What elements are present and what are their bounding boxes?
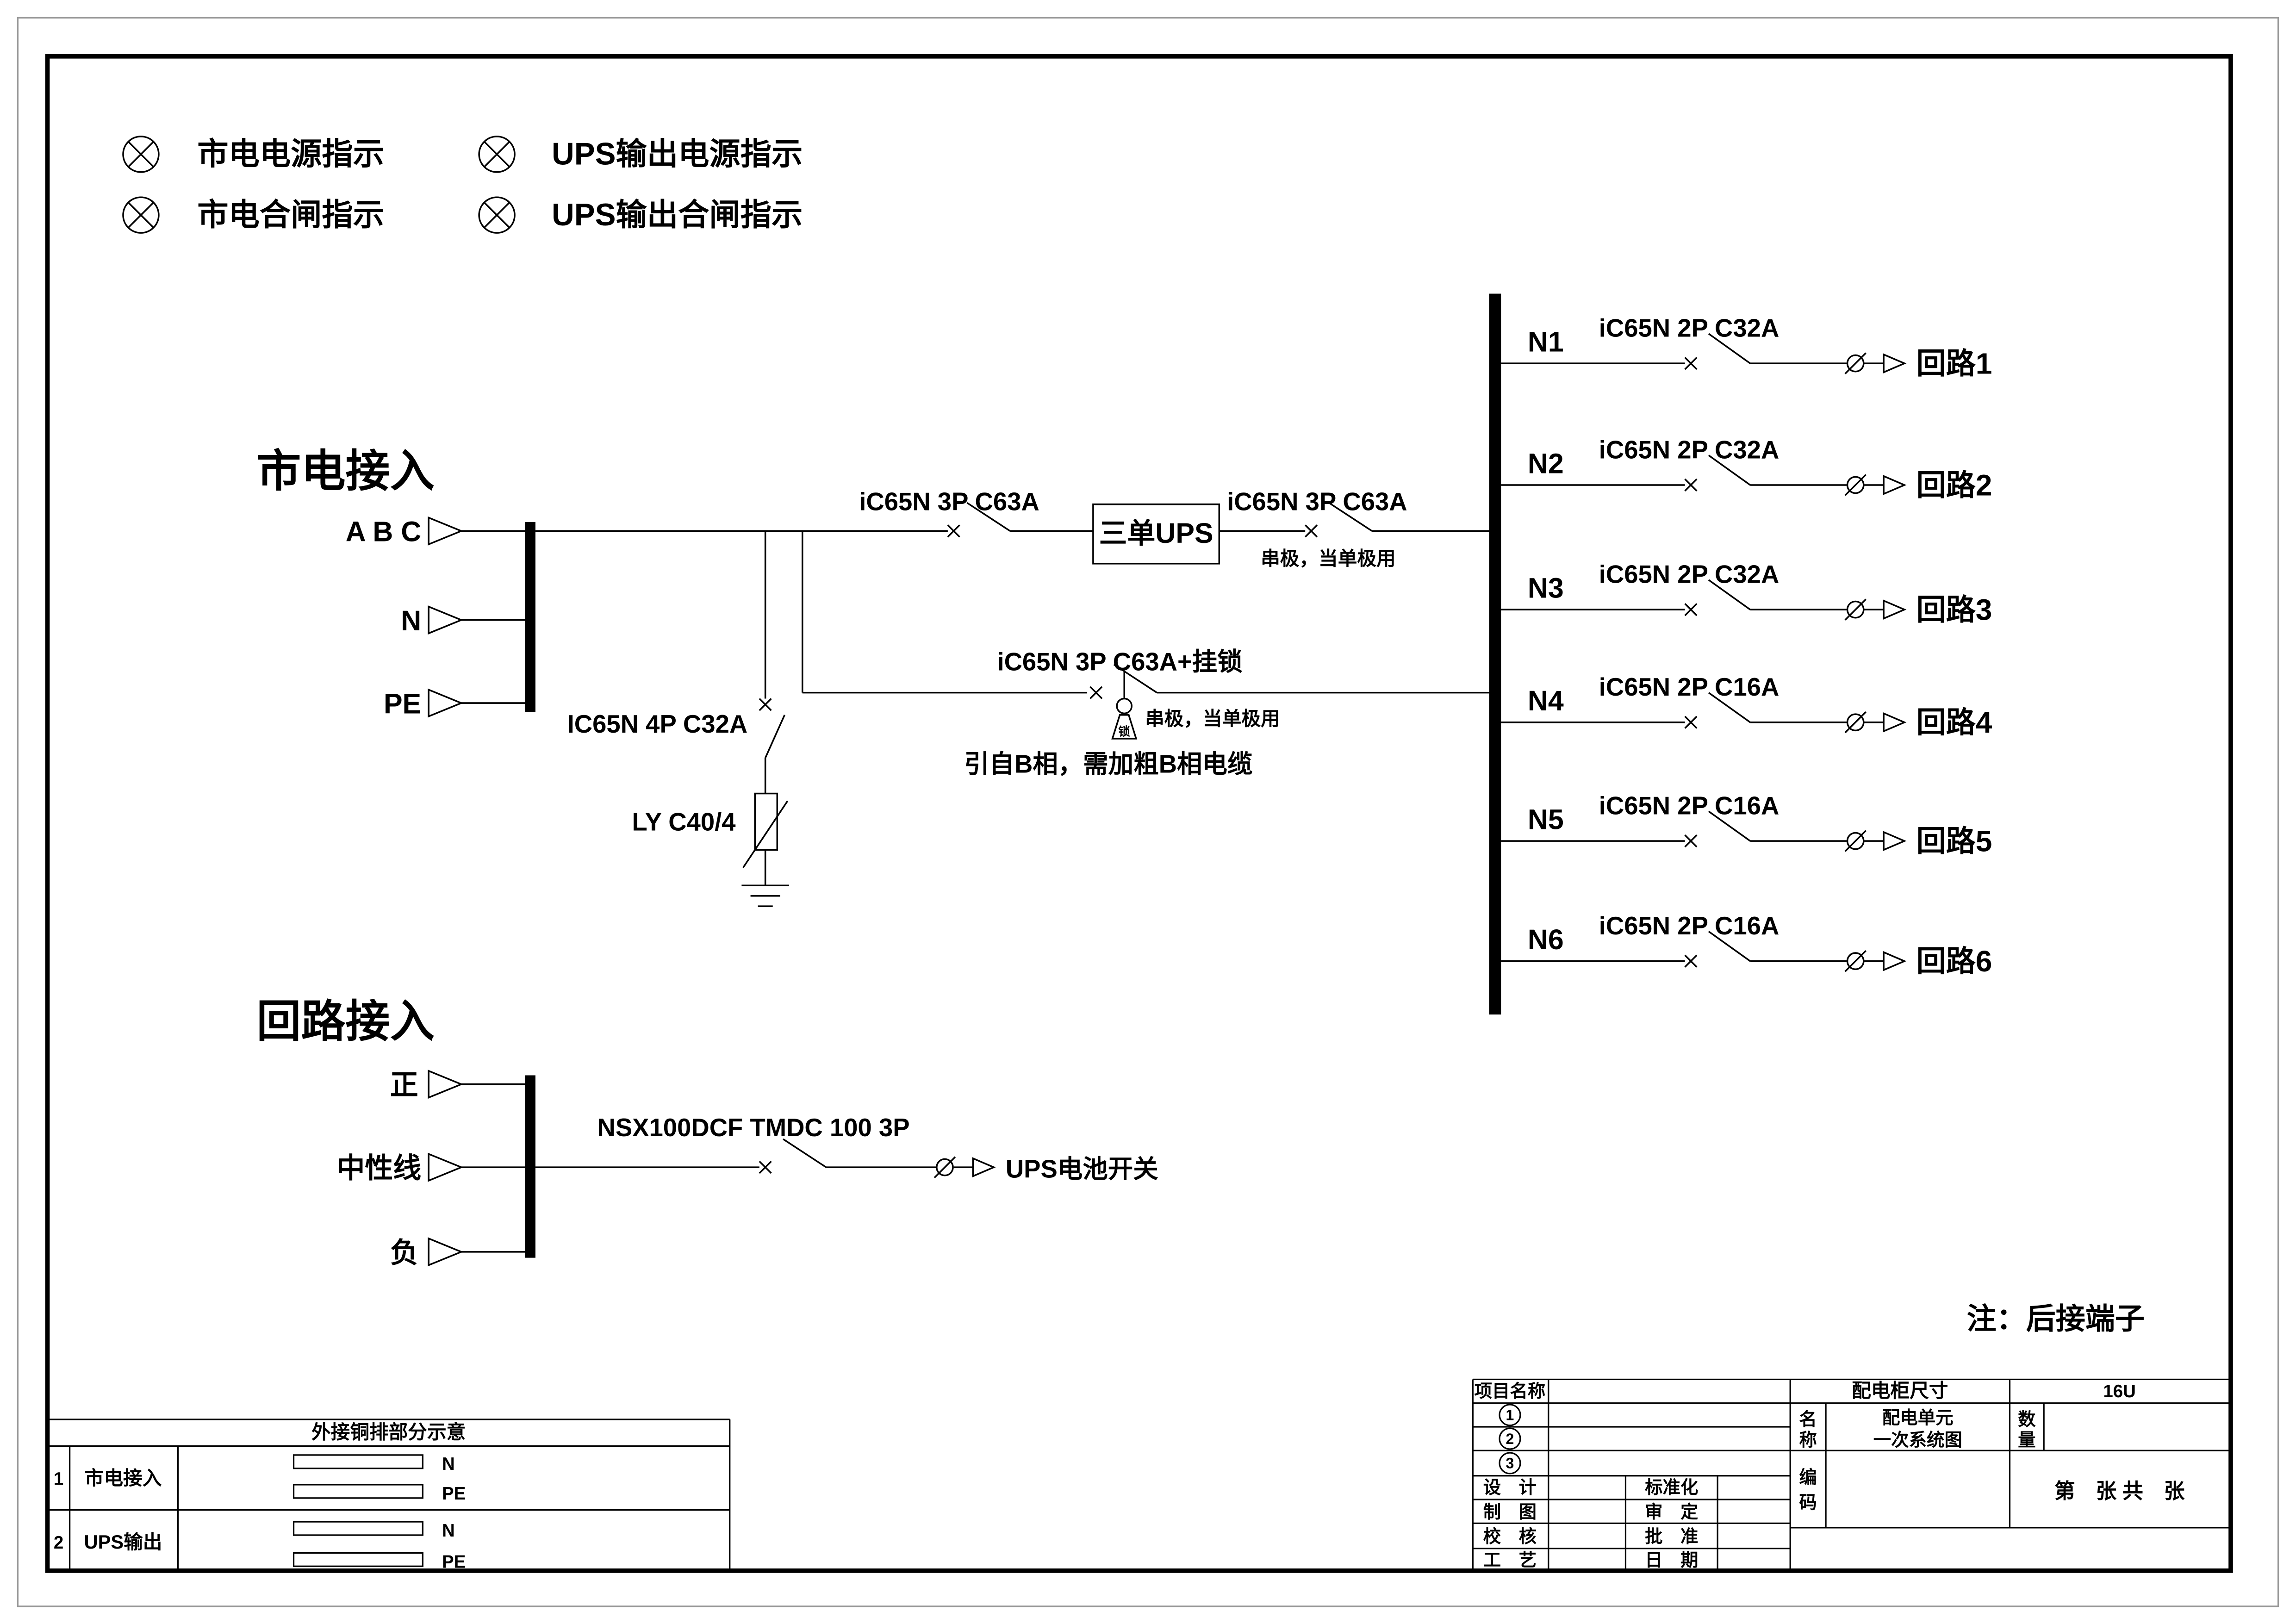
circuit-breaker-label: iC65N 2P C16A (1599, 912, 1780, 940)
svg-text:量: 量 (2018, 1431, 2035, 1450)
input-arrow-icon (429, 517, 461, 544)
circuit-id: N1 (1528, 326, 1564, 358)
output-arrow-icon (1884, 832, 1904, 850)
input-arrow-icon (429, 1238, 461, 1265)
cable-mark-icon (1845, 712, 1866, 733)
battery-output-label: UPS电池开关 (1006, 1155, 1158, 1183)
svg-text:2: 2 (1506, 1431, 1514, 1447)
circuit-breaker-label: iC65N 2P C32A (1599, 436, 1780, 464)
busbar-table-title: 外接铜排部分示意 (311, 1421, 466, 1443)
input-arrow-icon (429, 690, 461, 716)
table-row: 2 UPS输出 N PE (54, 1521, 466, 1572)
copper-bar (294, 1485, 423, 1498)
svg-text:数: 数 (2018, 1410, 2036, 1430)
padlock-char: 锁 (1118, 725, 1130, 739)
circuit-id: N4 (1528, 685, 1564, 716)
svg-text:1: 1 (1506, 1407, 1514, 1424)
project-name-label: 项目名称 (1475, 1381, 1546, 1401)
circuit-label: 回路2 (1916, 468, 1992, 502)
single-line-diagram: 市电电源指示 UPS输出电源指示 市电合闸指示 UPS输出合闸指示 市电接入 A… (0, 0, 2296, 1624)
drawing-sheet: 市电电源指示 UPS输出电源指示 市电合闸指示 UPS输出合闸指示 市电接入 A… (0, 0, 2296, 1624)
drawing-name-line2: 一次系统图 (1873, 1431, 1962, 1450)
indicator-lamp-icon (479, 137, 515, 172)
mains-bus-bar (525, 522, 535, 712)
bar-label: N (442, 1521, 455, 1541)
cable-note: 引自B相，需加粗B相电缆 (964, 750, 1252, 778)
title-block: 项目名称 配电柜尺寸 16U 1 2 3 名 称 配电单元 一次系统图 数 量 … (1473, 1379, 2231, 1570)
svg-text:称: 称 (1799, 1431, 1817, 1450)
battery-bus-bar (525, 1075, 535, 1257)
circuit-row: N2 iC65N 2P C32A 回路2 (1501, 436, 1992, 502)
output-arrow-icon (973, 1158, 994, 1176)
spd-label: LY C40/4 (632, 808, 735, 836)
breaker-label: IC65N 4P C32A (567, 710, 748, 738)
breaker-label: NSX100DCF TMDC 100 3P (597, 1114, 910, 1142)
circled-number-1: 1 (1500, 1405, 1520, 1425)
copper-bar (294, 1455, 423, 1468)
busbar-table: 外接铜排部分示意 1 市电接入 N PE 2 UPS输出 N PE (48, 1419, 730, 1572)
circuit-breaker-label: iC65N 2P C16A (1599, 791, 1780, 820)
standardization-label: 标准化 (1645, 1478, 1698, 1498)
battery-title: 回路接入 (256, 997, 435, 1046)
circuit-label: 回路3 (1916, 593, 1992, 627)
circuit-label: 回路5 (1916, 825, 1992, 858)
legend-label: 市电电源指示 (197, 137, 384, 172)
circuit-id: N5 (1528, 803, 1564, 835)
sheet-number-text: 第 张 共 张 (2054, 1479, 2185, 1503)
cable-mark-icon (1845, 353, 1866, 374)
process-label: 工 艺 (1483, 1550, 1537, 1570)
bar-label: N (442, 1454, 455, 1474)
mains-section: 市电接入 A B C N PE iC65N 3P C63A 三单UPS (256, 447, 1489, 906)
ups-box-label: 三单UPS (1099, 517, 1213, 549)
spd-branch: IC65N 4P C32A LY C40/4 (567, 531, 789, 906)
ground-icon (741, 885, 789, 906)
sheet-outer-border (18, 18, 2278, 1606)
quantity-label-vertical: 数 量 (2018, 1410, 2036, 1450)
date-label: 日 期 (1645, 1550, 1698, 1570)
table-row: 1 市电接入 N PE (54, 1454, 466, 1504)
input-arrow-icon (429, 1154, 461, 1181)
battery-input-label: 负 (390, 1237, 418, 1268)
battery-input-label: 中性线 (337, 1152, 422, 1184)
row-name: 市电接入 (85, 1467, 162, 1489)
padlock-icon: 锁 (1113, 672, 1136, 739)
circuit-row: N3 iC65N 2P C32A 回路3 (1501, 560, 1992, 626)
breaker-symbol (759, 698, 784, 758)
circuit-breaker-label: iC65N 2P C32A (1599, 314, 1780, 342)
legend-label: 市电合闸指示 (197, 198, 384, 232)
drawing-frame (48, 56, 2231, 1571)
drawing-name-line1: 配电单元 (1882, 1408, 1954, 1428)
output-section: N1 iC65N 2P C32A 回路1 N2 iC65N 2P C32A (1489, 294, 1992, 1015)
code-label-vertical: 编 码 (1799, 1468, 1817, 1512)
output-arrow-icon (1884, 601, 1904, 618)
breaker-label: iC65N 3P C63A (859, 487, 1039, 516)
cable-mark-icon (1845, 599, 1866, 620)
battery-section: 回路接入 正 中性线 负 NSX100DCF TMDC 100 3P UPS电池… (256, 997, 1158, 1268)
output-arrow-icon (1884, 713, 1904, 731)
checker-label: 校 核 (1483, 1527, 1537, 1547)
indicator-lamp-icon (123, 197, 159, 233)
designer-label: 设 计 (1483, 1478, 1537, 1498)
legend: 市电电源指示 UPS输出电源指示 市电合闸指示 UPS输出合闸指示 (123, 137, 803, 233)
reviewer-label: 审 定 (1645, 1502, 1698, 1522)
circuit-row: N4 iC65N 2P C16A 回路4 (1501, 673, 1992, 739)
circuit-row: N6 iC65N 2P C16A 回路6 (1501, 912, 1992, 978)
breaker-symbol (759, 1139, 826, 1173)
indicator-lamp-icon (479, 197, 515, 233)
output-arrow-icon (1884, 952, 1904, 970)
bar-label: PE (442, 1484, 466, 1504)
circuit-breaker-label: iC65N 2P C16A (1599, 673, 1780, 701)
copper-bar (294, 1522, 423, 1535)
draftsman-label: 制 图 (1483, 1502, 1537, 1522)
mains-input-label: A B C (346, 516, 421, 548)
approver-label: 批 准 (1645, 1527, 1698, 1547)
breaker-note: 串极，当单极用 (1261, 548, 1396, 569)
circuit-label: 回路1 (1916, 347, 1992, 380)
cable-mark-icon (934, 1157, 955, 1178)
svg-text:编: 编 (1799, 1468, 1817, 1487)
cable-mark-icon (1845, 951, 1866, 971)
input-arrow-icon (429, 1071, 461, 1098)
svg-text:名: 名 (1799, 1410, 1817, 1430)
row-number: 1 (54, 1469, 63, 1489)
legend-label: UPS输出电源指示 (552, 137, 803, 172)
breaker-label: iC65N 3P C63A+挂锁 (997, 648, 1242, 676)
copper-bar (294, 1553, 423, 1566)
drawing-note: 注：后接端子 (1967, 1302, 2145, 1335)
cable-mark-icon (1845, 831, 1866, 852)
svg-text:码: 码 (1799, 1493, 1817, 1512)
circled-number-3: 3 (1500, 1453, 1520, 1474)
circuit-id: N6 (1528, 924, 1564, 955)
legend-label: UPS输出合闸指示 (552, 198, 803, 232)
row-name: UPS输出 (84, 1531, 162, 1553)
circuit-row: N5 iC65N 2P C16A 回路5 (1501, 791, 1992, 858)
battery-input-label: 正 (390, 1069, 418, 1101)
output-bus-bar (1489, 294, 1501, 1015)
cabinet-size-label: 配电柜尺寸 (1852, 1380, 1948, 1401)
mains-title: 市电接入 (256, 447, 435, 496)
row-number: 2 (54, 1533, 63, 1553)
circuit-id: N2 (1528, 448, 1564, 479)
circuit-row: N1 iC65N 2P C32A 回路1 (1501, 314, 1992, 380)
output-arrow-icon (1884, 476, 1904, 494)
circuit-id: N3 (1528, 572, 1564, 604)
indicator-lamp-icon (123, 137, 159, 172)
name-label-vertical: 名 称 (1799, 1410, 1817, 1450)
breaker-label: iC65N 3P C63A (1227, 487, 1407, 516)
circuit-breaker-label: iC65N 2P C32A (1599, 560, 1780, 588)
circuit-label: 回路4 (1916, 706, 1992, 739)
output-arrow-icon (1884, 355, 1904, 372)
mains-input-label: N (401, 605, 421, 636)
circled-number-2: 2 (1500, 1428, 1520, 1449)
breaker-note: 串极，当单极用 (1145, 708, 1280, 729)
mains-input-label: PE (384, 688, 421, 719)
cable-mark-icon (1845, 475, 1866, 496)
input-arrow-icon (429, 607, 461, 634)
cabinet-size-value: 16U (2103, 1381, 2136, 1401)
circuit-label: 回路6 (1916, 945, 1992, 978)
svg-text:3: 3 (1506, 1455, 1514, 1472)
bar-label: PE (442, 1552, 466, 1572)
